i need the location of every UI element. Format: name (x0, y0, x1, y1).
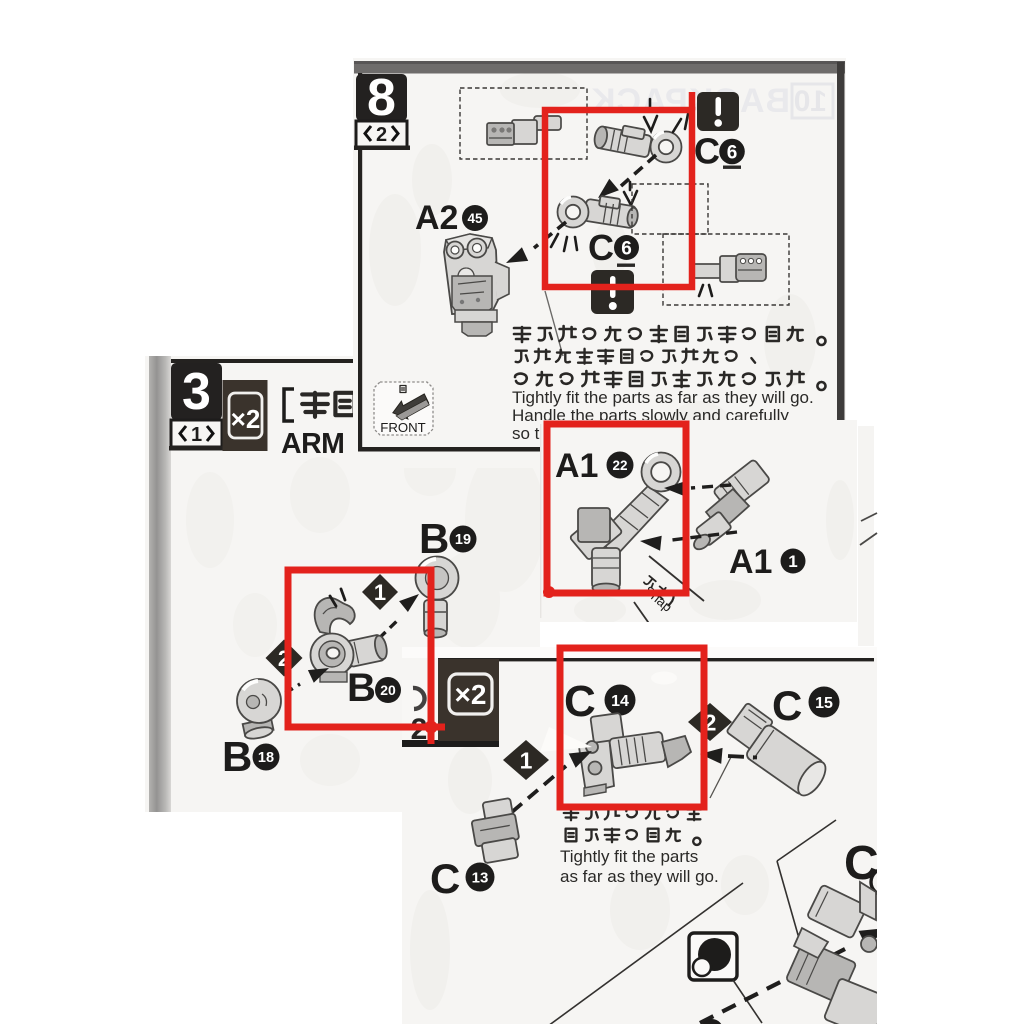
svg-text:1: 1 (374, 580, 386, 605)
svg-text:1: 1 (520, 747, 533, 773)
svg-text:C: C (430, 855, 460, 902)
svg-text:A2: A2 (415, 199, 458, 237)
svg-text:C: C (588, 227, 614, 268)
svg-text:×2: ×2 (231, 404, 261, 434)
svg-text:3: 3 (182, 363, 211, 421)
svg-text:18: 18 (258, 750, 274, 766)
svg-text:A1: A1 (555, 447, 598, 485)
svg-text:A1: A1 (729, 543, 772, 581)
svg-text:13: 13 (472, 869, 489, 886)
svg-text:14: 14 (611, 693, 629, 710)
svg-text:FRONT: FRONT (380, 420, 425, 435)
svg-text:Tightly fit the parts: Tightly fit the parts (560, 847, 698, 866)
svg-text:6: 6 (727, 142, 738, 163)
svg-text:×2: ×2 (455, 679, 487, 710)
svg-text:1: 1 (191, 424, 202, 446)
svg-text:as far as they will go.: as far as they will go. (560, 867, 719, 886)
svg-text:B: B (419, 515, 449, 562)
svg-text:B: B (222, 733, 252, 780)
svg-text:10: 10 (794, 85, 827, 118)
svg-text:C: C (694, 131, 720, 172)
svg-text:45: 45 (467, 211, 483, 226)
svg-text:22: 22 (612, 458, 627, 473)
svg-text:8: 8 (367, 69, 396, 127)
svg-text:2: 2 (376, 124, 387, 146)
svg-text:Tightly fit the parts as far a: Tightly fit the parts as far as they wil… (512, 388, 814, 407)
svg-text:1: 1 (788, 552, 797, 571)
svg-text:6: 6 (621, 238, 632, 259)
svg-text:19: 19 (455, 532, 471, 548)
svg-text:C: C (772, 682, 802, 729)
svg-text:B: B (347, 666, 376, 710)
svg-text:15: 15 (815, 695, 833, 712)
svg-text:20: 20 (380, 682, 396, 698)
